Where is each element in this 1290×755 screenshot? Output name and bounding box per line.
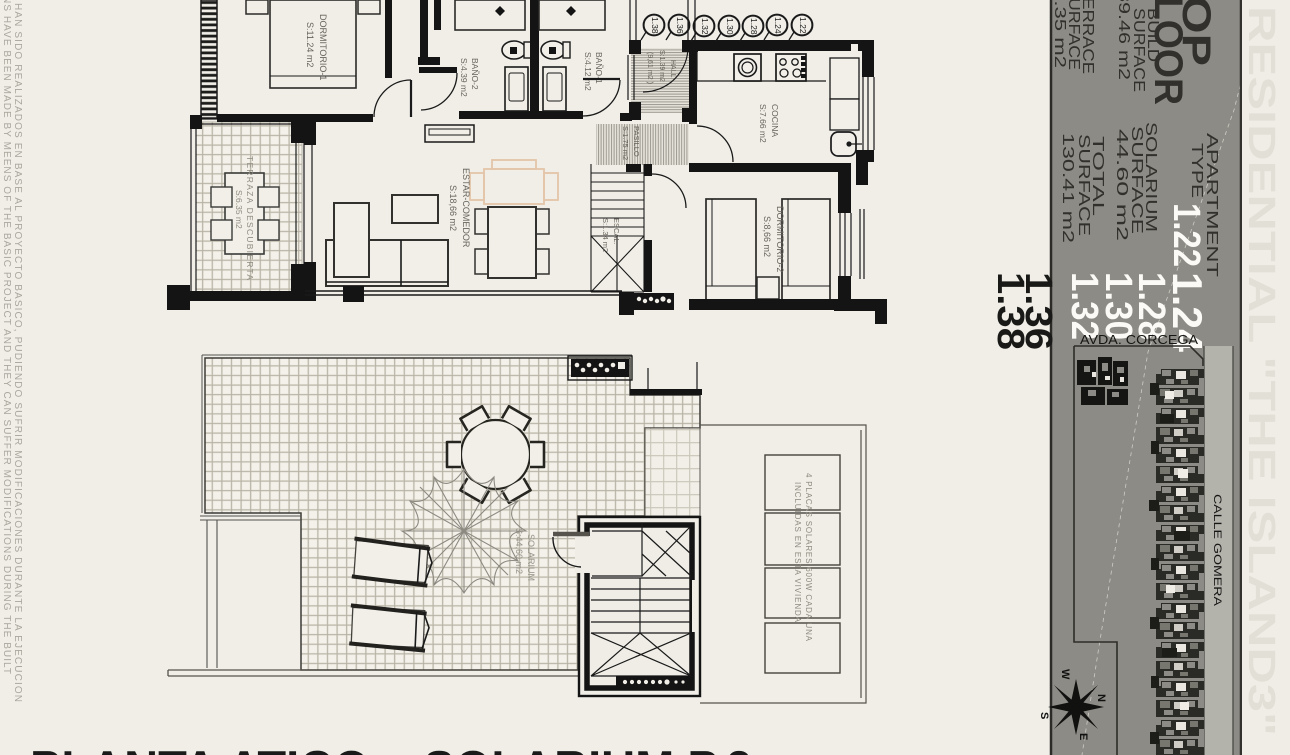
svg-text:S:4.39 m2: S:4.39 m2	[459, 58, 469, 97]
svg-text:INCLUIDAS EN ESTA VIVIENDA: INCLUIDAS EN ESTA VIVIENDA	[793, 482, 802, 623]
svg-text:BAÑO-2: BAÑO-2	[470, 58, 480, 90]
svg-text:89.46 m2: 89.46 m2	[1115, 0, 1132, 80]
svg-text:SURFACE: SURFACE	[1075, 134, 1092, 236]
svg-text:S:1.39 m2: S:1.39 m2	[658, 50, 665, 82]
svg-text:ESCAL.: ESCAL.	[612, 218, 621, 245]
svg-text:S:6.35 m2: S:6.35 m2	[234, 190, 244, 229]
svg-text:(9,61 m2 ): (9,61 m2 )	[646, 52, 653, 84]
svg-text:W: W	[1059, 669, 1071, 680]
svg-text:PLANS HAVE BEEN MADE BY MEENS: PLANS HAVE BEEN MADE BY MEENS OF THE BAS…	[1, 0, 12, 674]
svg-text:S: S	[1038, 712, 1050, 719]
svg-text:44.60 m2: 44.60 m2	[1113, 129, 1130, 241]
svg-text:1.30: 1.30	[725, 18, 735, 35]
svg-text:S:1.75 m2: S:1.75 m2	[621, 126, 630, 160]
svg-text:NOS HAN SIDO REALIZADOS EN BAS: NOS HAN SIDO REALIZADOS EN BASE AL PROYE…	[12, 0, 23, 702]
svg-text:1.22: 1.22	[798, 17, 808, 34]
svg-text:1.36: 1.36	[675, 17, 685, 34]
svg-text:1.24: 1.24	[773, 17, 783, 34]
svg-text:130.41 m2: 130.41 m2	[1059, 133, 1076, 243]
svg-text:N: N	[1095, 694, 1107, 702]
svg-text:S:4.12 m2: S:4.12 m2	[583, 52, 593, 91]
svg-text:S:44,60 m2: S:44,60 m2	[514, 528, 524, 574]
svg-text:1.28: 1.28	[749, 18, 759, 35]
svg-text:TERRAZA DESCUBIERTA: TERRAZA DESCUBIERTA	[245, 156, 255, 280]
svg-text:9.35 m2: 9.35 m2	[1051, 0, 1068, 68]
svg-text:S:7.66 m2: S:7.66 m2	[758, 104, 768, 143]
svg-text:1.32: 1.32	[700, 18, 710, 35]
svg-text:4 PLACAS SOLARES 600W CADA UNA: 4 PLACAS SOLARES 600W CADA UNA	[804, 473, 813, 642]
svg-text:AVDA. CORCEGA: AVDA. CORCEGA	[1080, 333, 1199, 347]
svg-text:TYPE: TYPE	[1188, 143, 1205, 198]
svg-text:PLANTA ATICO + SOLARIUM P.2: PLANTA ATICO + SOLARIUM P.2	[30, 741, 752, 755]
svg-text:PASILLO: PASILLO	[632, 126, 641, 157]
svg-text:ESTAR-COMEDOR: ESTAR-COMEDOR	[461, 168, 471, 248]
svg-text:DORMITORIO-2: DORMITORIO-2	[775, 206, 785, 272]
svg-text:S:18,66 m2: S:18,66 m2	[448, 185, 458, 231]
svg-text:1.32: 1.32	[1063, 272, 1105, 340]
svg-text:S:1.34 m2: S:1.34 m2	[601, 218, 610, 252]
svg-text:E: E	[1077, 733, 1089, 740]
svg-text:DORMITORIO-1: DORMITORIO-1	[318, 14, 328, 80]
svg-text:SOLARIUM: SOLARIUM	[526, 534, 536, 581]
svg-text:COCINA: COCINA	[770, 104, 780, 137]
svg-text:1.38: 1.38	[989, 272, 1031, 350]
svg-text:S:11.24 m2: S:11.24 m2	[305, 22, 315, 67]
svg-text:HALL: HALL	[669, 60, 676, 78]
svg-text:1.38: 1.38	[650, 17, 660, 34]
svg-text:1.22: 1.22	[1165, 203, 1207, 267]
svg-text:RESIDENTIAL "THE ISLAND3": RESIDENTIAL "THE ISLAND3"	[1240, 6, 1282, 736]
svg-text:CALLE GOMERA: CALLE GOMERA	[1211, 494, 1223, 607]
svg-text:S:8,66 m2: S:8,66 m2	[762, 216, 772, 257]
